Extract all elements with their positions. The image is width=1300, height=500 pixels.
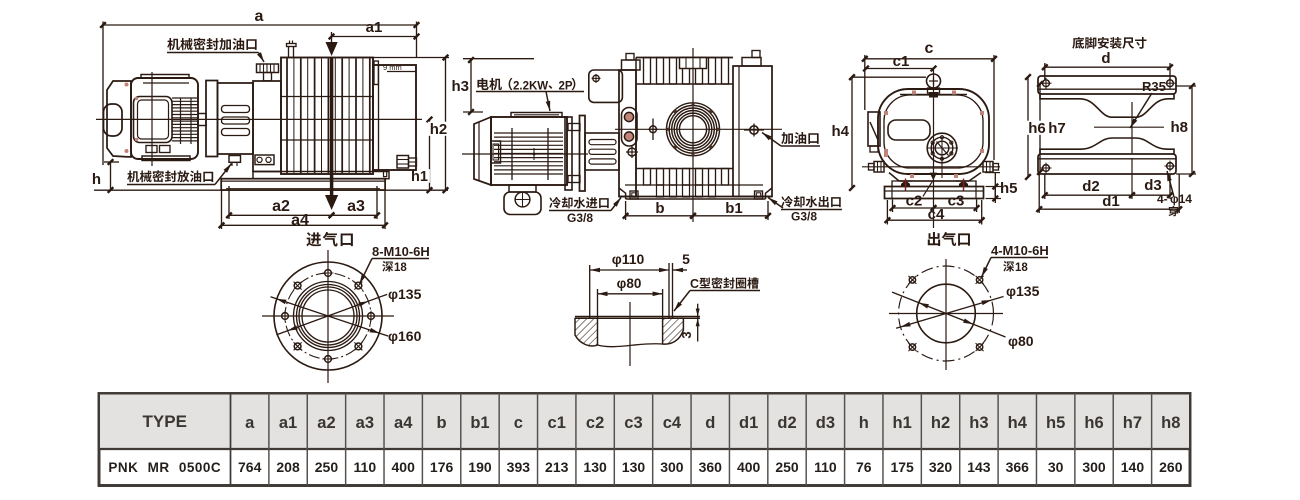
- svg-text:d: d: [1101, 50, 1110, 67]
- svg-text:a2: a2: [272, 198, 290, 215]
- svg-text:76: 76: [856, 459, 872, 475]
- svg-text:8-M10-6H: 8-M10-6H: [372, 244, 430, 259]
- svg-text:c2: c2: [906, 193, 923, 210]
- svg-text:143: 143: [967, 459, 991, 475]
- svg-text:h7: h7: [1123, 414, 1142, 432]
- svg-text:3: 3: [679, 331, 694, 338]
- svg-text:366: 366: [1006, 459, 1030, 475]
- svg-text:c: c: [925, 40, 934, 57]
- svg-text:a: a: [255, 8, 264, 25]
- svg-text:c4: c4: [663, 414, 682, 432]
- svg-text:360: 360: [699, 459, 723, 475]
- svg-text:2.2KW: 2.2KW: [513, 81, 548, 93]
- svg-text:2P: 2P: [559, 81, 573, 93]
- svg-text:h4: h4: [831, 123, 849, 140]
- svg-text:130: 130: [622, 459, 646, 475]
- svg-text:320: 320: [929, 459, 953, 475]
- svg-text:250: 250: [775, 459, 799, 475]
- svg-text:h3: h3: [969, 414, 988, 432]
- svg-text:h3: h3: [451, 78, 469, 95]
- svg-text:400: 400: [392, 459, 416, 475]
- svg-text:d1: d1: [1102, 193, 1120, 210]
- svg-text:5: 5: [682, 251, 690, 267]
- svg-text:h2: h2: [430, 121, 448, 138]
- svg-text:250: 250: [315, 459, 339, 475]
- svg-text:18: 18: [394, 262, 407, 274]
- svg-text:130: 130: [583, 459, 607, 475]
- svg-text:h5: h5: [1046, 414, 1065, 432]
- svg-text:c2: c2: [586, 414, 604, 432]
- svg-text:h1: h1: [411, 169, 428, 185]
- svg-text:φ80: φ80: [617, 276, 642, 291]
- svg-text:110: 110: [354, 459, 377, 475]
- svg-text:h5: h5: [1000, 180, 1018, 197]
- svg-text:c4: c4: [928, 206, 945, 223]
- svg-text:a: a: [245, 414, 255, 432]
- svg-text:φ135: φ135: [1006, 283, 1040, 299]
- svg-text:9 mm: 9 mm: [383, 63, 402, 72]
- svg-text:b1: b1: [725, 200, 743, 217]
- svg-text:h8: h8: [1161, 414, 1180, 432]
- svg-text:a1: a1: [366, 19, 383, 36]
- svg-text:4-: 4-: [1157, 192, 1168, 206]
- svg-text:a3: a3: [356, 414, 374, 432]
- svg-text:140: 140: [1121, 459, 1145, 475]
- svg-text:b: b: [655, 200, 664, 217]
- svg-text:208: 208: [276, 459, 300, 475]
- svg-text:φ80: φ80: [1008, 333, 1034, 349]
- svg-text:φ110: φ110: [612, 251, 645, 267]
- svg-text:a4: a4: [291, 212, 309, 229]
- svg-text:h: h: [859, 414, 869, 432]
- svg-text:TYPE: TYPE: [143, 412, 187, 431]
- svg-text:h6: h6: [1084, 414, 1103, 432]
- svg-text:d2: d2: [1082, 178, 1100, 195]
- svg-text:d2: d2: [777, 414, 796, 432]
- svg-text:c1: c1: [893, 53, 910, 70]
- svg-text:b1: b1: [470, 414, 489, 432]
- svg-text:b: b: [437, 414, 447, 432]
- svg-text:a2: a2: [317, 414, 335, 432]
- svg-text:176: 176: [430, 459, 454, 475]
- svg-text:30: 30: [1048, 459, 1064, 475]
- svg-text:c3: c3: [624, 414, 642, 432]
- svg-text:φ160: φ160: [388, 328, 422, 344]
- svg-text:300: 300: [660, 459, 684, 475]
- svg-text:h8: h8: [1170, 119, 1188, 136]
- svg-text:300: 300: [1082, 459, 1106, 475]
- svg-text:260: 260: [1159, 459, 1183, 475]
- svg-text:G3/8: G3/8: [567, 211, 593, 225]
- svg-text:c: c: [514, 414, 523, 432]
- svg-text:φ135: φ135: [388, 286, 422, 302]
- svg-text:190: 190: [468, 459, 492, 475]
- svg-text:C: C: [690, 277, 699, 291]
- svg-text:18: 18: [1015, 262, 1028, 274]
- svg-text:R35: R35: [1142, 79, 1166, 94]
- svg-text:110: 110: [814, 459, 837, 475]
- svg-text:4-M10-6H: 4-M10-6H: [991, 243, 1049, 258]
- svg-text:393: 393: [507, 459, 531, 475]
- svg-text:c3: c3: [948, 193, 965, 210]
- svg-text:a4: a4: [394, 414, 413, 432]
- svg-text:d3: d3: [816, 414, 835, 432]
- svg-text:h1: h1: [893, 414, 912, 432]
- svg-text:h4: h4: [1008, 414, 1028, 432]
- svg-text:d1: d1: [739, 414, 758, 432]
- svg-text:h2: h2: [931, 414, 950, 432]
- svg-text:h: h: [92, 171, 101, 188]
- svg-text:c1: c1: [548, 414, 566, 432]
- svg-text:PNK MR 0500C: PNK MR 0500C: [108, 460, 221, 475]
- svg-text:d: d: [705, 414, 715, 432]
- svg-text:764: 764: [238, 459, 262, 475]
- svg-text:a3: a3: [347, 198, 365, 215]
- svg-text:h6: h6: [1028, 120, 1046, 137]
- svg-text:175: 175: [890, 459, 914, 475]
- svg-text:h7: h7: [1048, 120, 1066, 137]
- svg-text:G3/8: G3/8: [791, 210, 817, 224]
- svg-text:400: 400: [737, 459, 761, 475]
- svg-text:a1: a1: [279, 414, 297, 432]
- svg-text:213: 213: [545, 459, 569, 475]
